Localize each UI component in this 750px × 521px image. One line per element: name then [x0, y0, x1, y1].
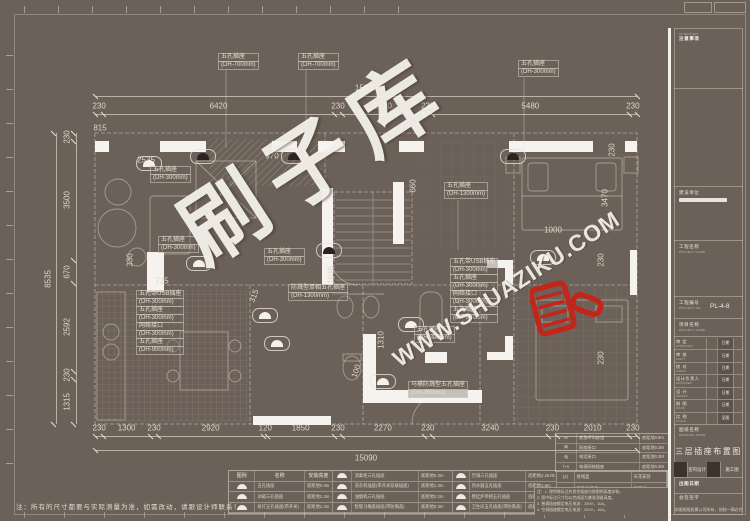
legend-cell: 冰箱三孔插座	[254, 492, 304, 502]
copyright-note: 本图纸版权属公司所有，仿制一律必究	[674, 507, 743, 513]
socket-legend-glyph	[456, 505, 466, 510]
legend-cell: 热水器五孔插座	[469, 482, 526, 492]
legend-cell: 底距地0.3m	[418, 471, 452, 481]
socket-callout: 五孔插座(DH-300mm)	[518, 61, 559, 77]
legend-cell: 底距地1.3m	[304, 503, 332, 513]
dimension-label: 230	[147, 424, 160, 433]
dimension-label: 230	[626, 102, 639, 111]
socket-callout: 防溅型单相五孔插座(DH-1300mm)	[288, 285, 348, 301]
dimension-line	[56, 133, 57, 424]
approval-label: 设 计DESIGN	[674, 388, 706, 399]
dimension-label: 6420	[210, 102, 228, 111]
approval-label: 审 定APPROVED	[674, 338, 706, 349]
approval-value	[706, 400, 717, 411]
title-block: ATTENTION 注意事项 建设单位 工程名称 PROJECT NAME 工程…	[666, 0, 750, 521]
stage-logo-cell	[706, 462, 720, 477]
dimension-label: 2920	[202, 424, 220, 433]
title-block-frame	[674, 28, 743, 515]
interface-name: 紧急呼叫按钮	[576, 434, 639, 443]
approval-label-en: CHECK	[676, 370, 706, 373]
socket-legend-glyph	[237, 505, 247, 510]
stage-construction: 施工图	[720, 462, 743, 477]
socket-glyph	[507, 153, 519, 160]
approval-right-value	[733, 350, 743, 361]
dimension-label: 230	[63, 369, 72, 382]
callout-line: 防溅型单相五孔插座	[288, 284, 348, 293]
socket-symbol	[264, 336, 290, 351]
approval-right-value	[733, 363, 743, 374]
approval-right-value	[733, 375, 743, 386]
approval-right: 日期	[717, 350, 733, 361]
callout-line: (DH-300mm)	[264, 256, 305, 265]
dimension-label: 315	[247, 288, 260, 304]
socket-legend-glyph	[337, 505, 347, 510]
approval-label: 比 例SCALE	[674, 413, 706, 424]
legend-cell: 洗衣机插座(带开关双联插座)	[351, 482, 418, 492]
dimension-label: 1646	[327, 266, 336, 284]
interface-symbol: 电	[556, 453, 576, 462]
legend-row: 消毒柜三孔插座底距地0.3m	[333, 471, 453, 482]
approval-right-value	[733, 400, 743, 411]
callout-line: (DH-300mm)	[408, 389, 468, 398]
dimension-label: 1315	[63, 393, 72, 411]
legend-note-line: 4. 空调插座额定电压电流：250V，16A。	[537, 507, 669, 513]
owner-label: 建设单位	[679, 190, 727, 196]
socket-glyph	[259, 312, 271, 319]
dimension-label: 3500	[63, 192, 72, 210]
callout-line: 五孔带USB插座	[136, 290, 184, 299]
legend-cell: 天花安装	[631, 471, 666, 482]
legend-cell	[333, 482, 351, 492]
approval-right: 日期	[717, 338, 733, 349]
approval-value	[706, 350, 717, 361]
socket-glyph	[323, 247, 335, 254]
socket-callout: 五孔插座(DH-1300mm)	[444, 183, 488, 199]
dimension-label: 8535	[44, 270, 53, 288]
approval-label-en: DRAW	[676, 407, 706, 410]
approval-row: 设计负责人DESIGNER日期	[674, 375, 743, 387]
callout-line: (DH-1300mm)	[288, 292, 348, 301]
legend-cell: 油烟机三孔插座	[351, 492, 418, 502]
dimension-label: 660	[409, 179, 418, 192]
approval-label-en: DESIGNER	[676, 382, 706, 385]
dimension-label: 230	[92, 424, 105, 433]
socket-symbol	[500, 149, 526, 164]
approval-label: 校 对CHECK	[674, 363, 706, 374]
approval-value	[706, 338, 717, 349]
legend-row: 油烟机三孔插座底距地2.2m	[333, 492, 453, 503]
dimension-label: 230	[421, 424, 434, 433]
socket-legend-glyph	[456, 494, 466, 499]
socket-glyph	[271, 340, 283, 347]
drawing-name: 三层插座布置图	[674, 446, 743, 457]
legend-cell: 卫生间五孔插座(带防溅盖)	[469, 503, 526, 513]
issue-date-label: 出图日期	[679, 481, 699, 487]
dimension-label: 670	[63, 265, 72, 278]
interface-name: 电话接口	[576, 453, 639, 462]
interface-symbol: ▪▪▪	[556, 434, 576, 443]
paint-brush-icon	[530, 272, 610, 352]
dimension-label: 330	[126, 253, 135, 266]
dimension-label: 15090	[355, 454, 377, 463]
sheet-note: 注：所有的尺寸都要与实际测量为准，如需改动，请跟设计师联系！	[16, 501, 241, 511]
socket-legend-glyph	[237, 494, 247, 499]
approval-row: 校 对CHECK日期	[674, 363, 743, 375]
legend-cell: 五孔插座	[254, 482, 304, 492]
dimension-label: 3240	[481, 424, 499, 433]
callout-line: (DH-700mm)	[218, 61, 259, 70]
dimension-label: 3470	[601, 189, 610, 207]
approval-label: 制 图DRAW	[674, 400, 706, 411]
dimension-label: 2592	[63, 318, 72, 336]
legend-cell	[229, 492, 254, 502]
approval-right-value	[733, 338, 743, 349]
socket-legend-glyph	[456, 484, 466, 489]
approval-value	[706, 388, 717, 399]
approval-label-en: AUDIT	[676, 358, 706, 361]
legend-header-row: 图例名称安装高度	[229, 471, 333, 482]
socket-callout: 五孔插座(DH-700mm)	[218, 54, 259, 70]
legend-cell	[453, 503, 469, 513]
legend-column: 图例名称安装高度五孔插座底距地0.3m冰箱三孔插座底距地1.3m射灯五孔插座(带…	[229, 471, 333, 513]
interface-height: 底距地0.3M	[639, 463, 668, 472]
legend-cell: 底距地1.3m	[304, 492, 332, 502]
dimension-label: 230	[63, 130, 72, 143]
dimension-label: 230	[331, 424, 344, 433]
interface-height: 底距地0.9m	[639, 434, 668, 443]
legend-cell: 壁挂炉单相五孔插座	[469, 492, 526, 502]
callout-line: (DH-1300mm)	[444, 190, 488, 199]
legend-cell	[229, 503, 254, 513]
interface-name: 电视网络插座	[576, 463, 639, 472]
approval-right: 日期	[717, 375, 733, 386]
interface-symbol: 网	[556, 444, 576, 453]
legend-cell: 名称	[254, 471, 304, 481]
legend-cell: 底距地1.3m	[418, 482, 452, 492]
approval-row: 审 定APPROVED日期	[674, 338, 743, 350]
callout-line: 五孔带USB插座	[450, 258, 498, 267]
legend-notes: 注：1. 除特殊标注外其余插座均按图例高度安装。2. 图中标注尺寸均以完成面为基…	[534, 487, 671, 515]
approval-value	[706, 375, 717, 386]
legend-cell: (J)	[557, 471, 574, 482]
interface-row: 电电话接口底距地0.3M	[556, 453, 668, 463]
legend-cell: 消毒柜三孔插座	[351, 471, 418, 481]
legend-cell	[453, 482, 469, 492]
callout-line: 马桶防溅型五孔插座	[408, 381, 468, 390]
approval-value	[706, 363, 717, 374]
dimension-label: 2010	[584, 424, 602, 433]
dimension-label: 100	[349, 363, 362, 379]
dimension-label: 230	[626, 424, 639, 433]
dimension-line	[76, 133, 77, 424]
socket-glyph	[377, 378, 389, 385]
dimension-label: 230	[597, 351, 606, 364]
dimension-label: 725	[155, 277, 168, 286]
interface-table: ▪▪▪紧急呼叫按钮底距地0.9m网网络接口底距地0.3M电电话接口底距地0.3M…	[555, 433, 669, 472]
socket-callout: 马桶防溅型五孔插座(DH-300mm)	[408, 382, 468, 398]
dimension-label: 2270	[374, 424, 392, 433]
project-no-value: PL-4-8	[710, 303, 730, 310]
interface-row: 网网络接口底距地0.3M	[556, 444, 668, 454]
interface-row: ▪▪▪紧急呼叫按钮底距地0.9m	[556, 434, 668, 444]
signature-label: 会签签字	[679, 495, 699, 501]
title-block-divider	[668, 28, 671, 521]
approval-row: 审 核AUDIT日期	[674, 350, 743, 362]
socket-legend-glyph	[456, 473, 466, 478]
approval-right: 见图	[717, 413, 733, 424]
approval-row: 制 图DRAW日期	[674, 400, 743, 412]
legend-cell: 底距地2.2m	[418, 492, 452, 502]
interface-row: T+V电视网络插座底距地0.3M	[556, 463, 668, 472]
legend-row: 洗衣机插座(带开关双联插座)底距地1.3m	[333, 482, 453, 493]
dimension-label: 230	[92, 102, 105, 111]
approval-row: 设 计DESIGN日期	[674, 388, 743, 400]
legend-cell: 安装高度	[304, 471, 332, 481]
socket-legend-glyph	[337, 473, 347, 478]
legend-cell	[229, 482, 254, 492]
legend-cell	[333, 492, 351, 502]
interface-height: 底距地0.3M	[639, 453, 668, 462]
approval-label-en: SCALE	[676, 420, 706, 423]
socket-legend-glyph	[337, 494, 347, 499]
legend-column: 消毒柜三孔插座底距地0.3m洗衣机插座(带开关双联插座)底距地1.3m油烟机三孔…	[333, 471, 453, 513]
legend-cell	[453, 492, 469, 502]
approval-right: 日期	[717, 400, 733, 411]
dimension-label: 1850	[292, 424, 310, 433]
dimension-label: 1000	[544, 226, 562, 235]
legend-cell: 底距地0.3m	[304, 482, 332, 492]
stage-logo-cell	[674, 462, 687, 477]
legend-cell: 底距地2.2m/0.3m	[525, 471, 556, 481]
approval-label-en: APPROVED	[676, 345, 706, 348]
interface-height: 底距地0.3M	[639, 444, 668, 453]
legend-row: (J)接线盒天花安装	[557, 471, 667, 483]
approval-label: 设计负责人DESIGNER	[674, 375, 706, 386]
dimension-label: 230	[546, 424, 559, 433]
interface-name: 网络接口	[576, 444, 639, 453]
callout-line: (DH-900mm)	[136, 346, 184, 355]
legend-cell: 空调三孔插座	[469, 471, 526, 481]
approval-value	[706, 413, 717, 424]
socket-symbol	[370, 374, 396, 389]
interface-symbol: T+V	[556, 463, 576, 472]
legend-cell	[333, 503, 351, 513]
stage-row: 室内设计 施工图	[674, 462, 743, 478]
dimension-label: 230	[597, 253, 606, 266]
legend-cell: 智能马桶盖插座(带防溅盖)	[351, 503, 418, 513]
legend-cell	[333, 471, 351, 481]
approval-right-value	[733, 388, 743, 399]
socket-legend-glyph	[237, 484, 247, 489]
legend-row: 五孔插座底距地0.3m	[229, 482, 333, 493]
approval-right-value	[733, 413, 743, 424]
dimension-label: 815	[93, 124, 106, 133]
attention-cn: 注意事项	[679, 36, 699, 42]
socket-symbol	[252, 308, 278, 323]
legend-cell: 接线盒	[574, 471, 631, 482]
dimension-label: 230	[608, 143, 617, 156]
approval-label-en: DESIGN	[676, 395, 706, 398]
dimension-label: 5480	[521, 102, 539, 111]
socket-legend-glyph	[337, 484, 347, 489]
legend-table: 图例名称安装高度五孔插座底距地0.3m冰箱三孔插座底距地1.3m射灯五孔插座(带…	[228, 470, 668, 514]
dimension-label: 1310	[377, 331, 386, 349]
dimension-label: 120	[259, 424, 272, 433]
socket-callout: 五孔带USB插座(DH-300mm)五孔插座(DH-300mm)网络接口(DH-…	[136, 291, 184, 355]
approval-rows: 审 定APPROVED日期审 核AUDIT日期校 对CHECK日期设计负责人DE…	[674, 338, 743, 424]
stage-design: 室内设计	[687, 462, 706, 477]
approval-row: 比 例SCALE见图	[674, 413, 743, 424]
legend-cell: 射灯五孔插座(带开关)	[254, 503, 304, 513]
legend-cell	[453, 471, 469, 481]
callout-line: (DH-300mm)	[518, 68, 559, 77]
dimension-label: 1300	[118, 424, 136, 433]
approval-right: 日期	[717, 388, 733, 399]
socket-symbol	[316, 243, 342, 258]
legend-cell: 底距地0.3m	[418, 503, 452, 513]
drawing-sheet: { "colors":{"background":"#6C6158","ink"…	[0, 0, 750, 521]
owner-name-redacted	[679, 198, 727, 202]
approval-right: 日期	[717, 363, 733, 374]
approval-label: 审 核AUDIT	[674, 350, 706, 361]
legend-cell: 图例	[229, 471, 254, 481]
legend-row: 冰箱三孔插座底距地1.3m	[229, 492, 333, 503]
legend-row: 空调三孔插座底距地2.2m/0.3m	[453, 471, 557, 482]
legend-row: 射灯五孔插座(带开关)底距地1.3m	[229, 503, 333, 514]
legend-row: 智能马桶盖插座(带防溅盖)底距地0.3m	[333, 503, 453, 514]
